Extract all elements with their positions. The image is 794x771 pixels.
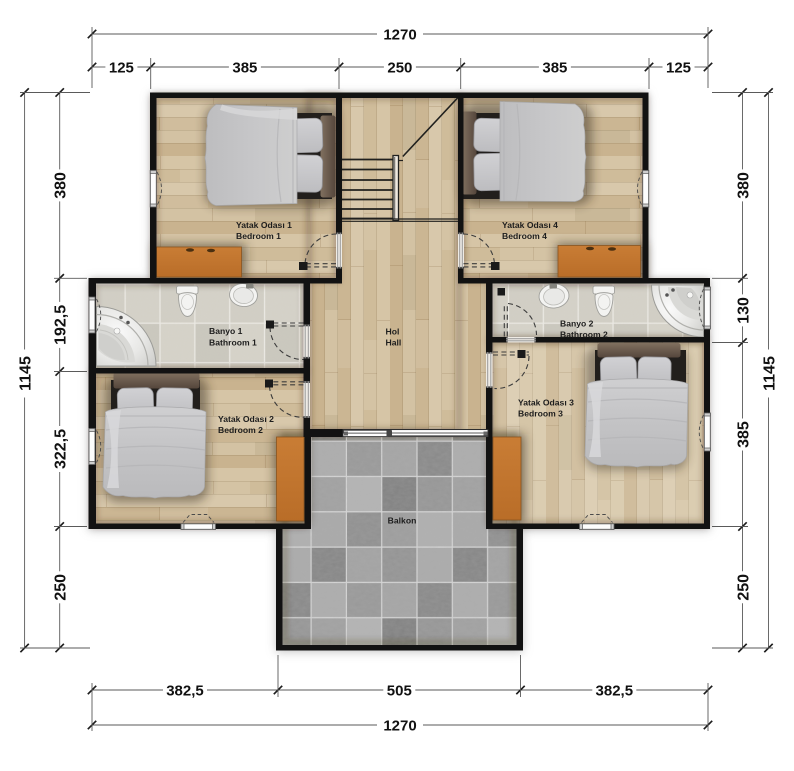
svg-text:125: 125 [109, 60, 134, 77]
svg-text:Bedroom 2: Bedroom 2 [218, 425, 263, 435]
svg-text:Bedroom 1: Bedroom 1 [236, 231, 281, 241]
svg-text:125: 125 [666, 60, 691, 77]
svg-text:130: 130 [735, 297, 752, 324]
svg-text:385: 385 [232, 60, 257, 77]
svg-text:1145: 1145 [17, 356, 34, 391]
svg-text:Yatak Odası 3: Yatak Odası 3 [518, 398, 574, 408]
svg-text:380: 380 [735, 172, 752, 199]
svg-text:382,5: 382,5 [596, 683, 634, 700]
svg-text:192,5: 192,5 [53, 305, 70, 345]
svg-text:Banyo 1: Banyo 1 [209, 326, 243, 336]
svg-text:Bathroom 2: Bathroom 2 [560, 330, 608, 340]
svg-text:250: 250 [387, 60, 412, 77]
svg-text:1270: 1270 [383, 718, 416, 735]
svg-text:Yatak Odası 1: Yatak Odası 1 [236, 220, 292, 230]
svg-text:505: 505 [387, 683, 412, 700]
svg-text:Yatak Odası 2: Yatak Odası 2 [218, 414, 274, 424]
svg-text:Yatak Odası 4: Yatak Odası 4 [502, 220, 558, 230]
svg-text:385: 385 [735, 421, 752, 448]
svg-text:Bedroom 3: Bedroom 3 [518, 409, 563, 419]
svg-text:385: 385 [542, 60, 567, 77]
svg-text:250: 250 [53, 574, 70, 601]
svg-text:250: 250 [735, 574, 752, 601]
svg-text:Banyo 2: Banyo 2 [560, 319, 594, 329]
svg-text:Hol: Hol [386, 327, 400, 337]
svg-text:1270: 1270 [383, 27, 416, 44]
svg-text:Balkon: Balkon [388, 516, 417, 526]
svg-text:322,5: 322,5 [53, 429, 70, 469]
svg-text:1145: 1145 [761, 356, 778, 391]
svg-text:382,5: 382,5 [166, 683, 204, 700]
svg-text:Bedroom 4: Bedroom 4 [502, 231, 547, 241]
svg-text:Hall: Hall [386, 338, 402, 348]
svg-text:380: 380 [53, 172, 70, 199]
svg-text:Bathroom 1: Bathroom 1 [209, 338, 257, 348]
